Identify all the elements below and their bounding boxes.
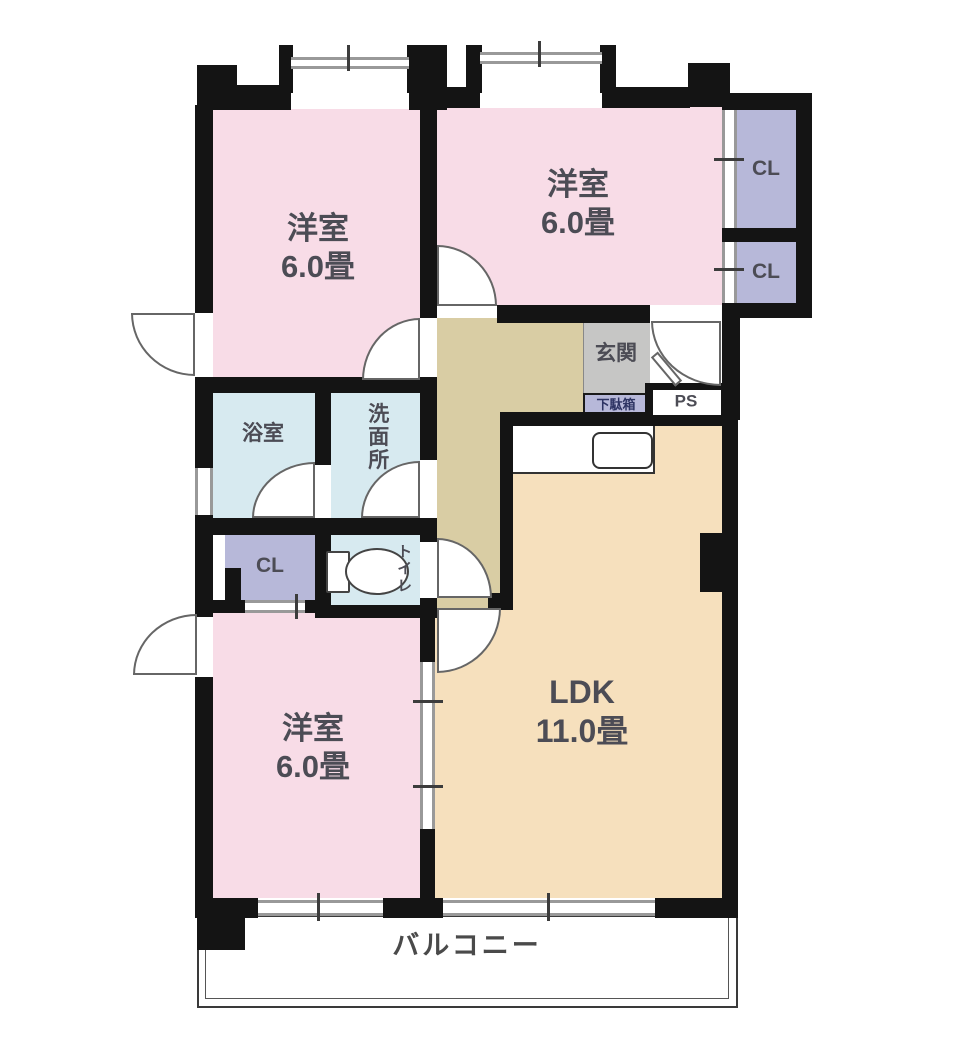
bedroom-ldk-sliding-door bbox=[420, 662, 435, 829]
balcony-label: バルコニー bbox=[392, 930, 541, 963]
wall bbox=[305, 600, 318, 613]
wall bbox=[383, 898, 443, 918]
room-size: 11.0畳 bbox=[536, 712, 629, 751]
wall bbox=[497, 305, 650, 323]
wall bbox=[602, 87, 690, 108]
toilet-label: トイレ bbox=[394, 544, 412, 595]
floor-plan: 洋室 6.0畳 洋室 6.0畳 洋室 6.0畳 LDK 11.0畳 浴室 洗面所… bbox=[0, 0, 960, 1058]
wall bbox=[195, 518, 437, 535]
wall bbox=[722, 420, 738, 898]
closet-sliding-door-upper bbox=[722, 110, 737, 228]
wall bbox=[796, 93, 812, 318]
wall bbox=[195, 600, 245, 613]
ldk-label: LDK 11.0畳 bbox=[536, 673, 629, 751]
room-name: 洋室 bbox=[276, 710, 350, 748]
closet-upper-label: CL bbox=[752, 156, 780, 182]
window-tick bbox=[714, 268, 744, 271]
wall bbox=[225, 568, 241, 602]
room-size: 6.0畳 bbox=[541, 204, 615, 242]
entrance-label: 玄関 bbox=[595, 341, 637, 367]
window-tick bbox=[347, 45, 350, 71]
wall bbox=[722, 228, 796, 242]
bay-window-right bbox=[480, 52, 602, 64]
window-tick bbox=[547, 893, 550, 921]
kitchen-sink-icon bbox=[592, 432, 653, 469]
room-name: 洋室 bbox=[541, 166, 615, 204]
closet-hall-label: CL bbox=[256, 553, 284, 579]
wall bbox=[600, 45, 616, 93]
wall bbox=[195, 105, 213, 313]
wall bbox=[420, 829, 435, 898]
room-size: 6.0畳 bbox=[276, 748, 350, 786]
casement-window-arc-upper bbox=[131, 313, 195, 376]
room-name: LDK bbox=[536, 673, 629, 712]
washroom-label: 洗面所 bbox=[364, 403, 390, 472]
wall bbox=[420, 45, 437, 318]
balcony-window-left bbox=[258, 900, 383, 916]
wall bbox=[195, 677, 213, 898]
window-tick bbox=[538, 41, 541, 67]
bedroom-bottom-left-label: 洋室 6.0畳 bbox=[276, 710, 350, 786]
bathroom-label: 浴室 bbox=[242, 421, 284, 447]
wall bbox=[197, 898, 245, 950]
window-tick bbox=[295, 594, 298, 619]
wall bbox=[700, 533, 722, 592]
wall bbox=[500, 415, 513, 608]
wall bbox=[420, 382, 437, 460]
wall bbox=[315, 605, 437, 618]
room-size: 6.0畳 bbox=[281, 248, 355, 286]
pipe-space-label: PS bbox=[675, 392, 698, 413]
bay-window-left bbox=[291, 57, 409, 69]
room-name: 洋室 bbox=[281, 210, 355, 248]
wall bbox=[655, 898, 738, 918]
shoe-cabinet-label: 下駄箱 bbox=[596, 397, 635, 413]
casement-window-arc-lower bbox=[133, 614, 197, 675]
hallway-upper bbox=[437, 318, 583, 415]
closet-sliding-door-lower bbox=[722, 242, 737, 303]
bedroom-top-right-label: 洋室 6.0畳 bbox=[541, 166, 615, 242]
window-tick bbox=[413, 700, 443, 703]
closet-lower-label: CL bbox=[752, 259, 780, 285]
bathroom-window bbox=[195, 468, 213, 515]
bedroom-top-left-label: 洋室 6.0畳 bbox=[281, 210, 355, 286]
wall bbox=[420, 613, 435, 663]
wall bbox=[279, 45, 293, 93]
window-tick bbox=[413, 785, 443, 788]
room-ldk bbox=[513, 426, 722, 898]
wall bbox=[315, 393, 331, 465]
window-tick bbox=[714, 158, 744, 161]
window-tick bbox=[317, 893, 320, 921]
